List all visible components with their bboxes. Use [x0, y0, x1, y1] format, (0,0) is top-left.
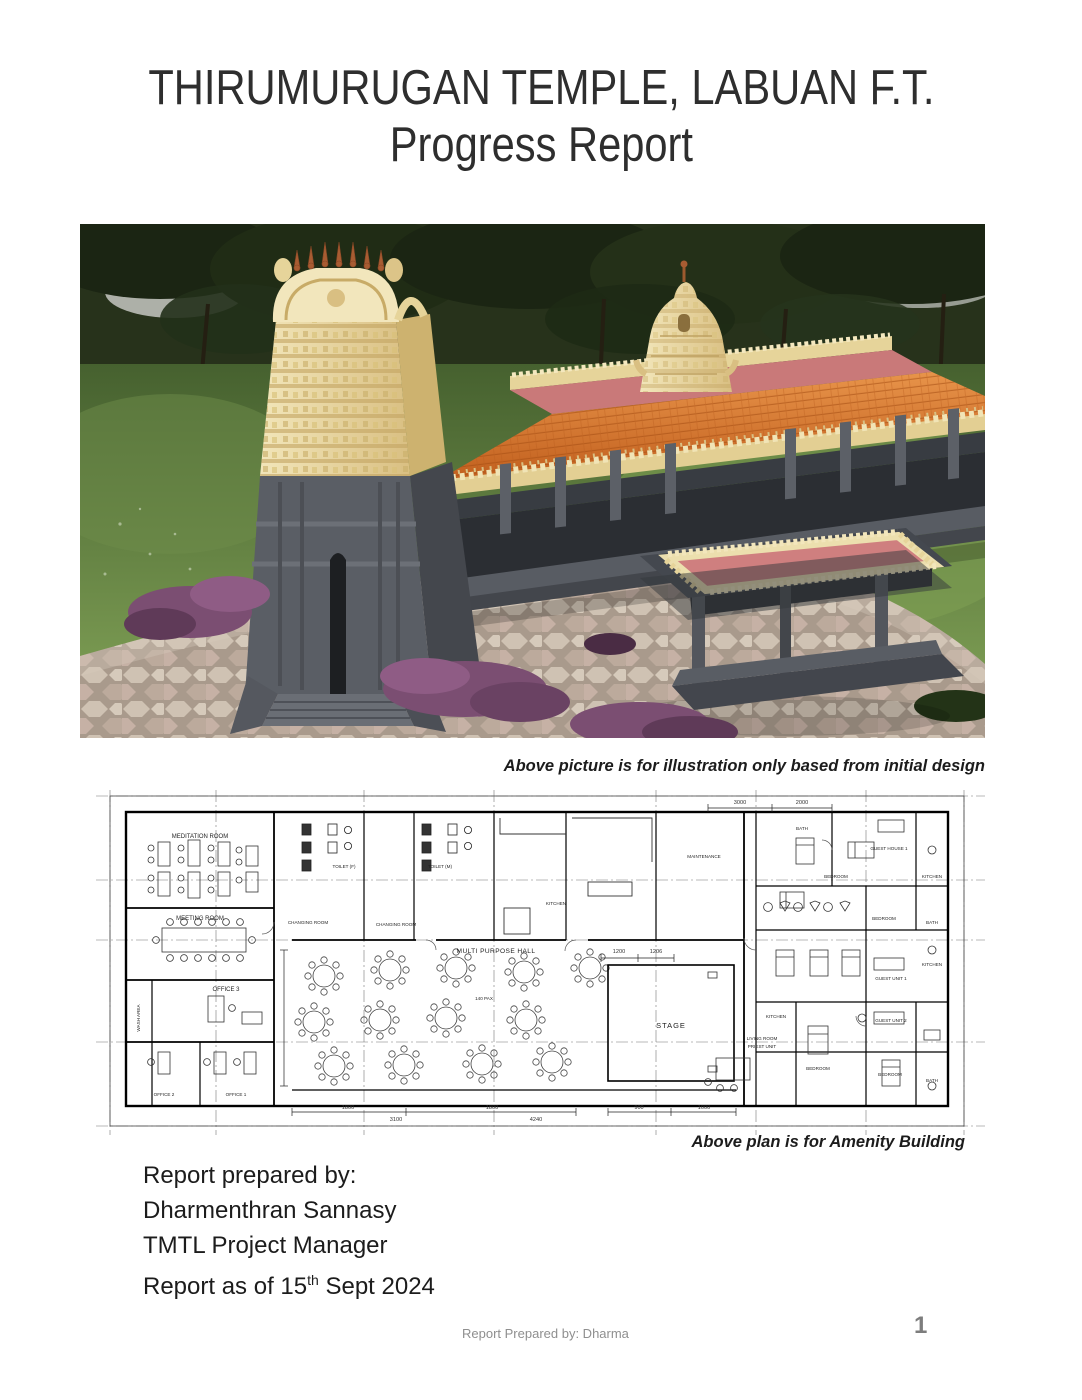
- svg-text:BATH: BATH: [926, 1078, 938, 1083]
- footer-text: Report Prepared by: Dharma: [462, 1326, 629, 1341]
- report-date-suffix: Sept 2024: [319, 1273, 435, 1300]
- floor-plan-drawing: MEDITATION ROOM MEETING ROOM WASH AREA O…: [96, 790, 985, 1135]
- temple-render-figure: [80, 224, 985, 738]
- page-title-line2: Progress Report: [389, 117, 692, 174]
- svg-text:MEDITATION ROOM: MEDITATION ROOM: [172, 834, 228, 840]
- svg-text:MEETING ROOM: MEETING ROOM: [176, 916, 224, 922]
- svg-text:STAGE: STAGE: [656, 1021, 686, 1030]
- svg-text:BATH: BATH: [926, 920, 938, 925]
- floor-plan-figure: MEDITATION ROOM MEETING ROOM WASH AREA O…: [96, 790, 985, 1135]
- svg-text:TOILET (M): TOILET (M): [428, 864, 453, 869]
- prepared-by-line2: Dharmenthran Sannasy: [143, 1193, 435, 1228]
- svg-text:KITCHEN: KITCHEN: [922, 962, 942, 967]
- svg-text:CHANGING ROOM: CHANGING ROOM: [376, 922, 416, 927]
- svg-text:900: 900: [634, 1105, 643, 1111]
- svg-text:WASH AREA: WASH AREA: [136, 1003, 141, 1031]
- svg-text:KITCHEN: KITCHEN: [546, 901, 566, 906]
- report-date-prefix: Report as of 15: [143, 1273, 307, 1300]
- svg-text:LIVING ROOM: LIVING ROOM: [747, 1036, 778, 1041]
- svg-text:GUEST UNIT 2: GUEST UNIT 2: [875, 1018, 907, 1023]
- svg-text:140 PAX: 140 PAX: [475, 996, 493, 1001]
- svg-text:3000: 3000: [734, 800, 746, 806]
- page-title: THIRUMURUGAN TEMPLE, LABUAN F.T. Progres…: [0, 60, 1082, 174]
- page-number: 1: [914, 1312, 927, 1340]
- svg-text:BEDROOM: BEDROOM: [872, 916, 896, 921]
- svg-text:PRIEST UNIT: PRIEST UNIT: [748, 1044, 777, 1049]
- svg-text:CHANGING ROOM: CHANGING ROOM: [288, 920, 328, 925]
- prepared-by-line3: TMTL Project Manager: [143, 1228, 435, 1263]
- svg-text:MAINTENANCE: MAINTENANCE: [687, 854, 720, 859]
- prepared-by-block: Report prepared by: Dharmenthran Sannasy…: [143, 1158, 435, 1304]
- svg-text:MULTI PURPOSE HALL: MULTI PURPOSE HALL: [457, 948, 536, 955]
- prepared-by-line4: Report as of 15th Sept 2024: [143, 1263, 435, 1304]
- svg-text:BEDROOM: BEDROOM: [806, 1066, 830, 1071]
- svg-text:3100: 3100: [390, 1117, 402, 1123]
- svg-text:BEDROOM: BEDROOM: [878, 1072, 902, 1077]
- page-title-line1: THIRUMURUGAN TEMPLE, LABUAN F.T.: [148, 60, 934, 117]
- temple-render-illustration: [80, 224, 985, 738]
- svg-text:TOILET (F): TOILET (F): [332, 864, 356, 869]
- svg-text:1000: 1000: [698, 1105, 710, 1111]
- report-date-ordinal: th: [307, 1272, 319, 1288]
- temple-caption: Above picture is for illustration only b…: [504, 757, 985, 776]
- svg-text:BATH: BATH: [796, 826, 808, 831]
- prepared-by-line1: Report prepared by:: [143, 1158, 435, 1193]
- svg-text:KITCHEN: KITCHEN: [766, 1014, 786, 1019]
- report-page: THIRUMURUGAN TEMPLE, LABUAN F.T. Progres…: [0, 0, 1082, 1400]
- entrance: [330, 553, 346, 694]
- svg-text:OFFICE 2: OFFICE 2: [154, 1092, 175, 1097]
- svg-text:OFFICE 1: OFFICE 1: [226, 1092, 247, 1097]
- svg-text:BEDROOM: BEDROOM: [824, 874, 848, 879]
- svg-text:1200: 1200: [613, 949, 625, 955]
- svg-text:1800: 1800: [342, 1105, 354, 1111]
- plan-caption: Above plan is for Amenity Building: [692, 1133, 966, 1152]
- svg-text:KITCHEN: KITCHEN: [922, 874, 942, 879]
- svg-text:OFFICE 3: OFFICE 3: [212, 987, 240, 993]
- svg-text:1800: 1800: [486, 1105, 498, 1111]
- svg-text:4240: 4240: [530, 1117, 542, 1123]
- svg-text:1206: 1206: [650, 949, 662, 955]
- svg-text:GUEST UNIT 1: GUEST UNIT 1: [875, 976, 907, 981]
- svg-text:GUEST HOUSE 1: GUEST HOUSE 1: [870, 846, 908, 851]
- svg-text:2000: 2000: [796, 800, 808, 806]
